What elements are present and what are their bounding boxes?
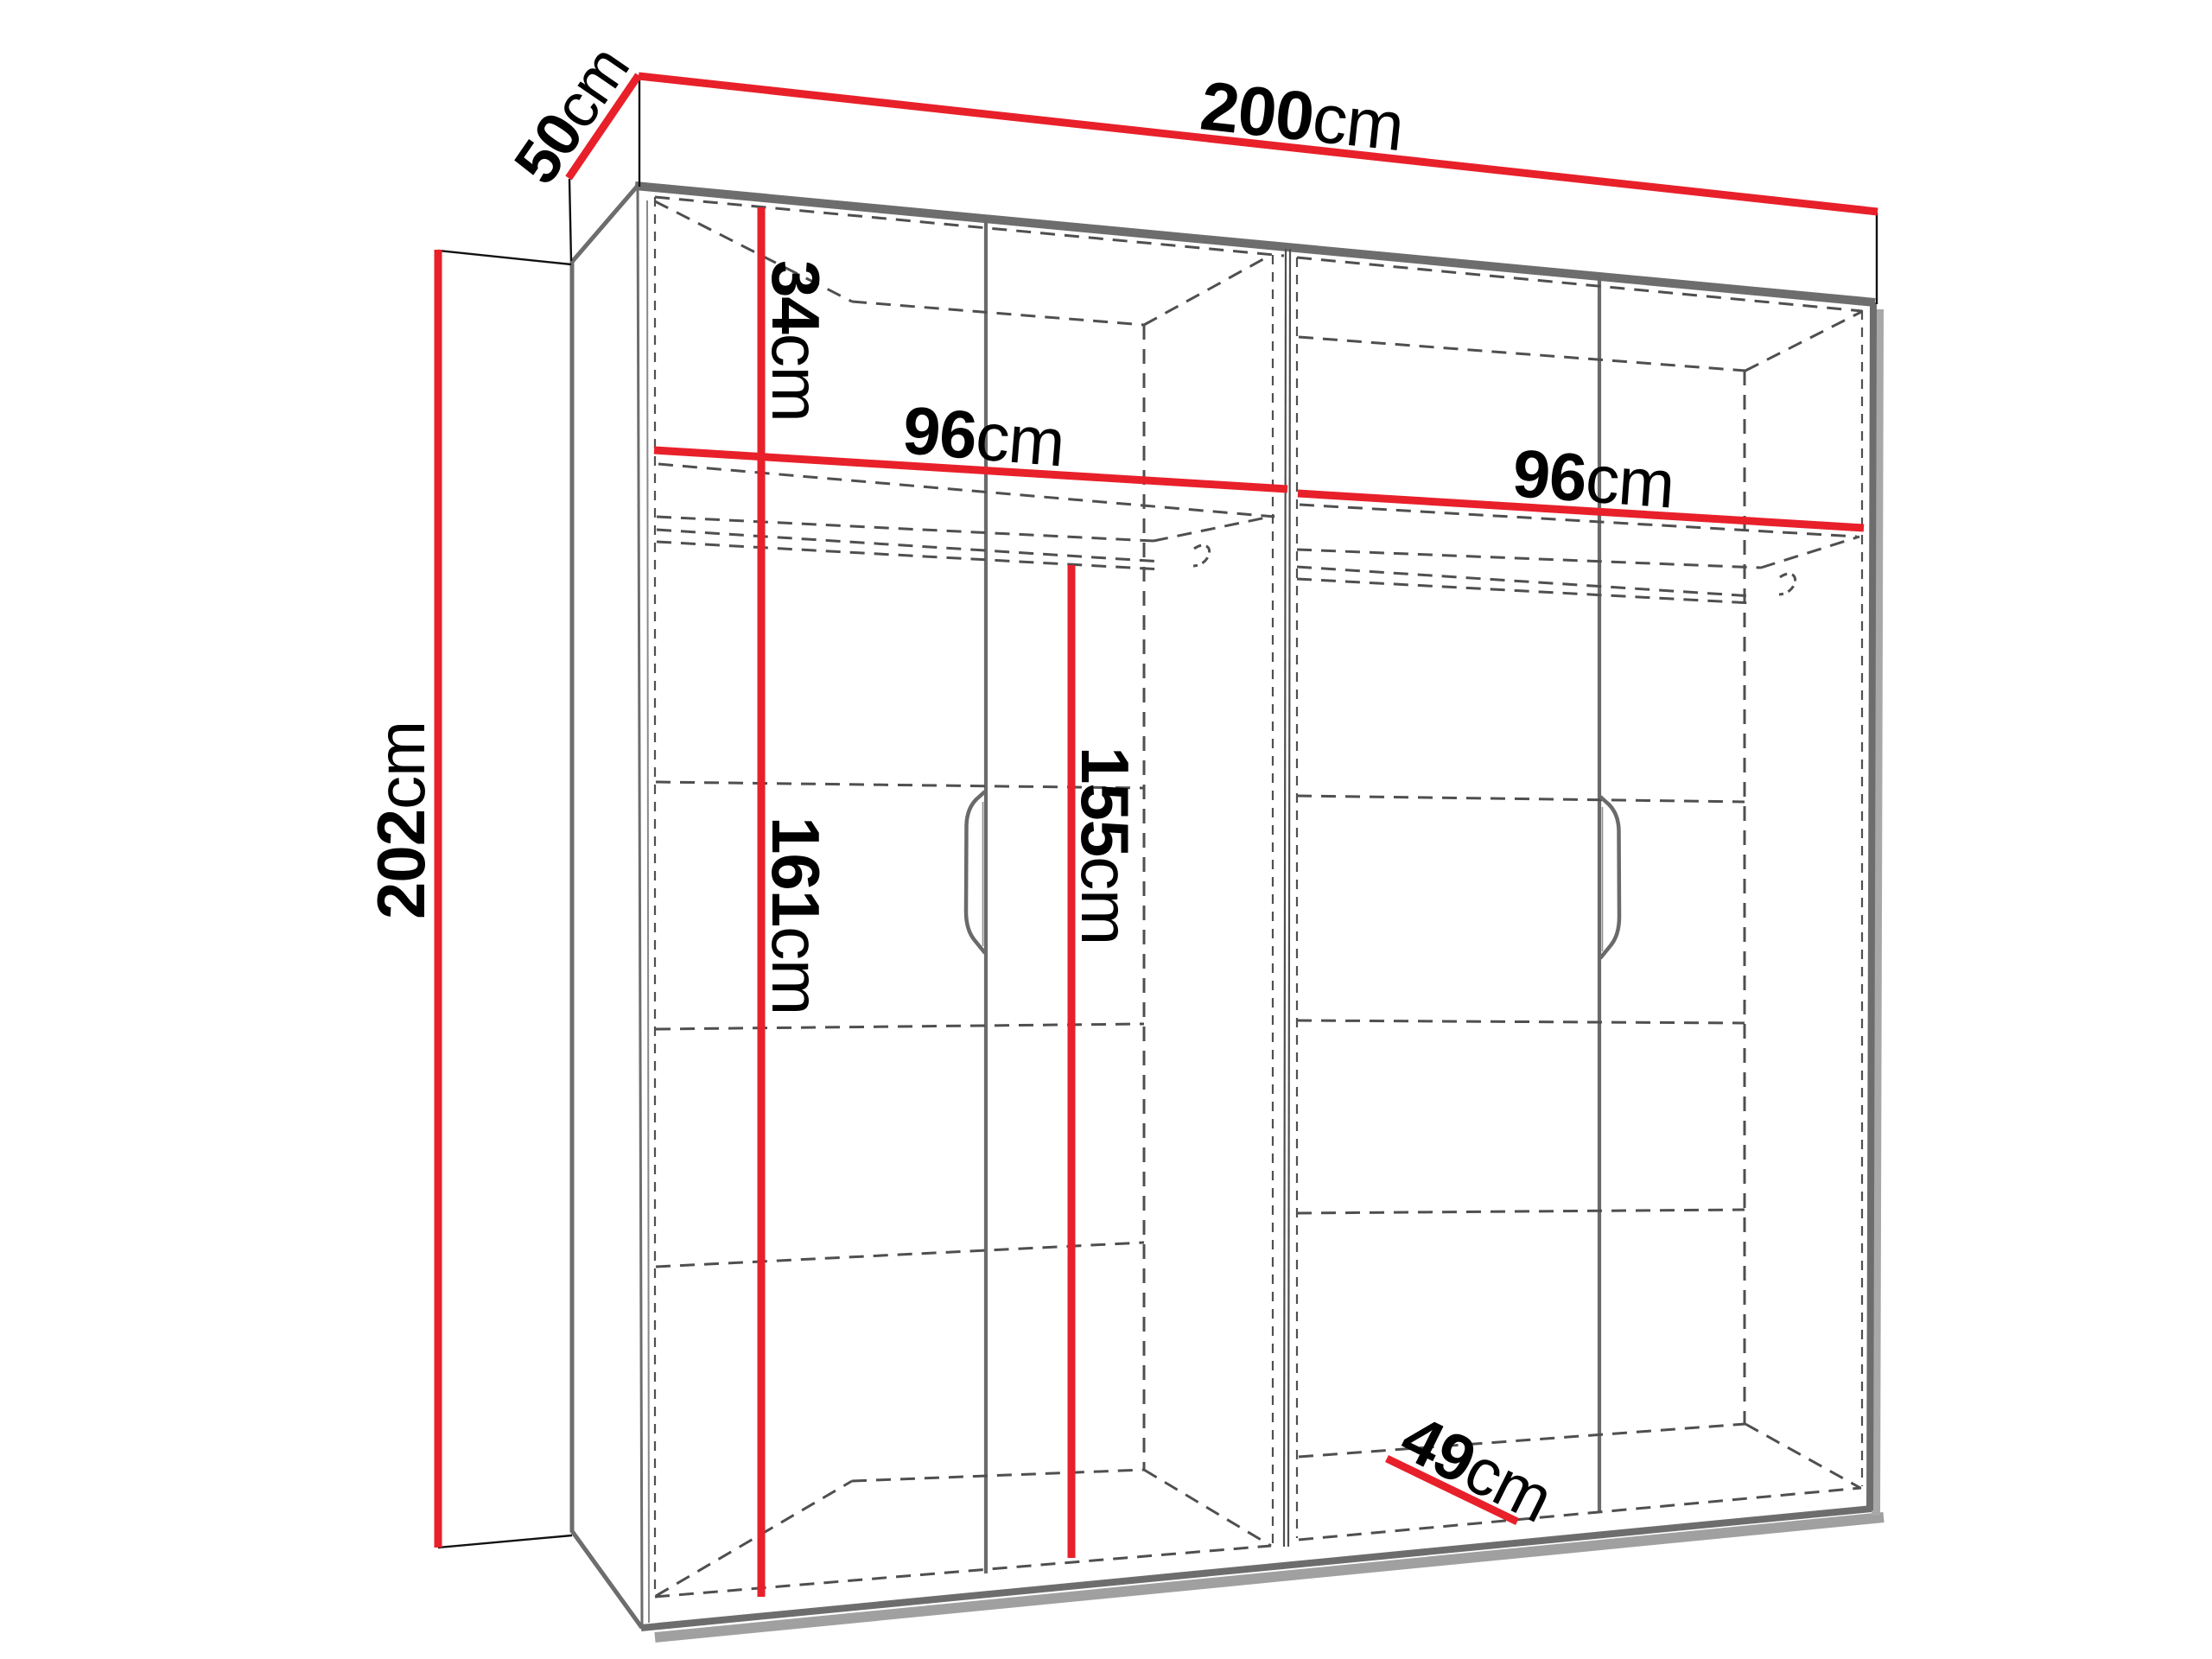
svg-text:34cm: 34cm (758, 260, 834, 422)
svg-text:96cm: 96cm (900, 391, 1067, 480)
svg-text:96cm: 96cm (1510, 435, 1677, 522)
svg-text:202cm: 202cm (363, 721, 439, 919)
svg-text:155cm: 155cm (1067, 747, 1143, 944)
svg-text:161cm: 161cm (758, 817, 834, 1014)
